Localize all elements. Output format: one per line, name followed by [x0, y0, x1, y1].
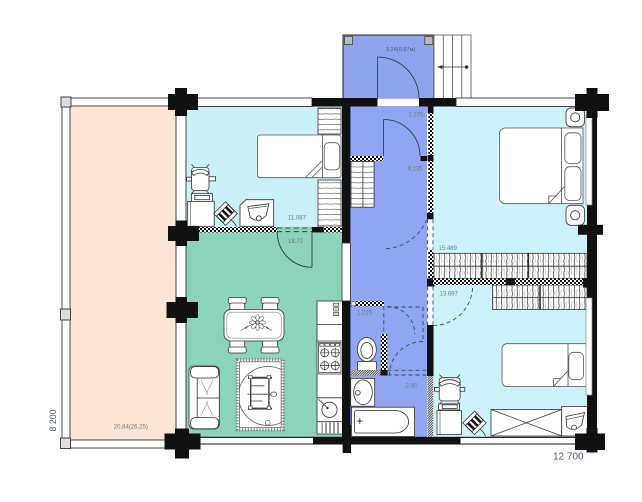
svg-text:8 200: 8 200	[48, 409, 58, 431]
svg-text:11.087: 11.087	[288, 215, 307, 221]
svg-text:20,84(26,25): 20,84(26,25)	[114, 424, 148, 430]
svg-text:3,24(0,97м): 3,24(0,97м)	[386, 47, 415, 53]
svg-text:18.72: 18.72	[288, 239, 304, 245]
svg-text:2.80: 2.80	[406, 384, 418, 390]
svg-text:13.697: 13.697	[440, 291, 459, 297]
svg-text:8.135: 8.135	[408, 166, 424, 172]
svg-text:12 700: 12 700	[553, 452, 584, 463]
svg-text:2.275: 2.275	[409, 113, 425, 119]
svg-text:15.489: 15.489	[439, 246, 458, 252]
svg-text:1.225: 1.225	[357, 311, 373, 317]
